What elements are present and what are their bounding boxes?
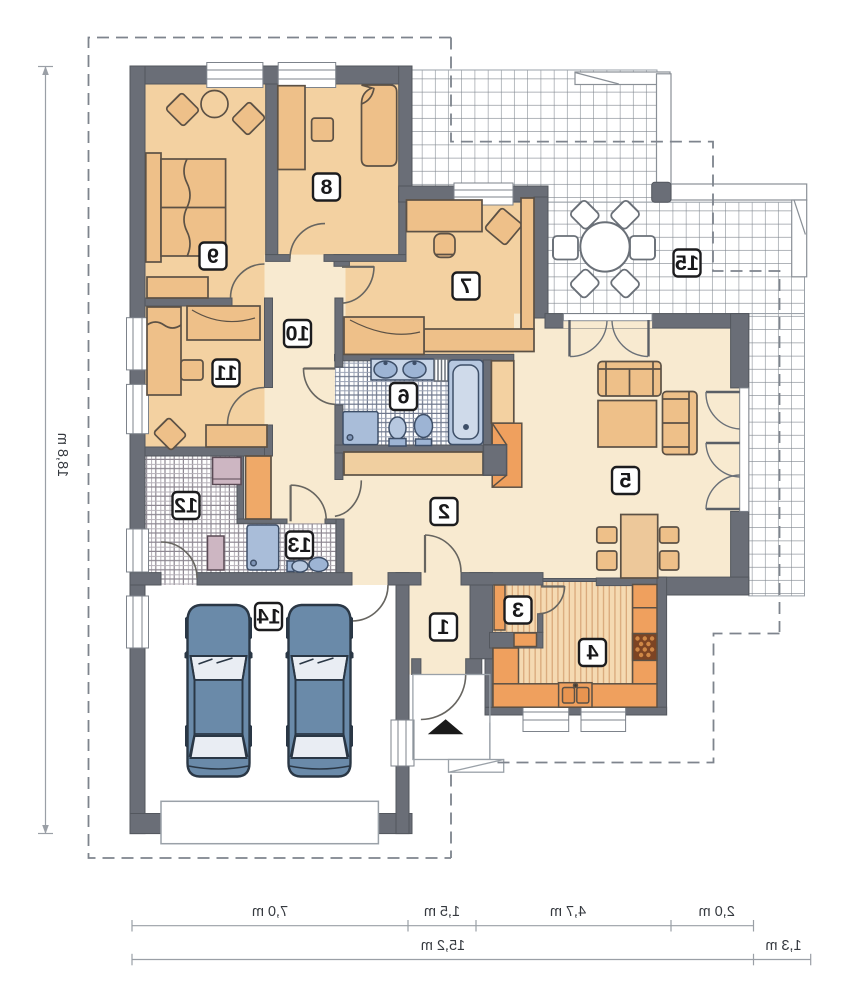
svg-text:9: 9 — [207, 244, 219, 268]
svg-text:4: 4 — [587, 641, 599, 665]
svg-text:15,2 m: 15,2 m — [421, 938, 465, 954]
svg-text:1,3 m: 1,3 m — [765, 938, 801, 954]
svg-text:2: 2 — [438, 500, 450, 524]
svg-text:11: 11 — [215, 361, 238, 385]
svg-text:7: 7 — [460, 274, 472, 298]
svg-text:10: 10 — [286, 322, 310, 346]
svg-text:18,8 m: 18,8 m — [54, 433, 70, 477]
svg-text:12: 12 — [174, 494, 198, 518]
svg-text:4,7 m: 4,7 m — [550, 904, 586, 920]
svg-text:1,5 m: 1,5 m — [424, 904, 460, 920]
svg-text:1: 1 — [437, 615, 449, 639]
svg-text:8: 8 — [320, 175, 332, 199]
svg-text:7,0 m: 7,0 m — [252, 904, 288, 920]
svg-text:6: 6 — [397, 385, 409, 409]
svg-text:13: 13 — [288, 533, 312, 557]
svg-text:5: 5 — [619, 469, 631, 493]
svg-text:14: 14 — [257, 605, 281, 629]
svg-text:2,0 m: 2,0 m — [699, 904, 735, 920]
svg-text:15: 15 — [675, 251, 699, 275]
svg-text:3: 3 — [512, 598, 524, 622]
